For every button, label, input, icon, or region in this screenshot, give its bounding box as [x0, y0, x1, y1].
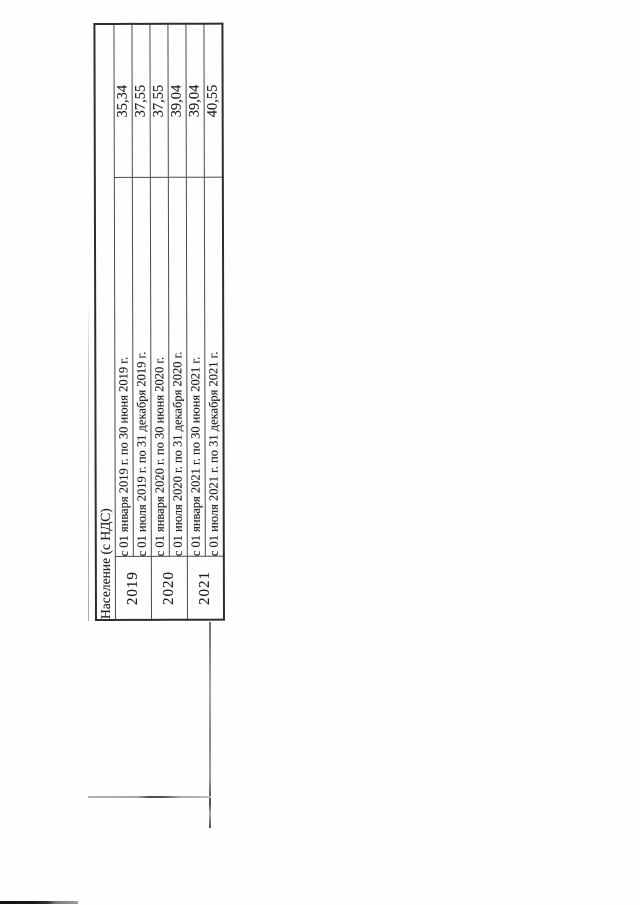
table-row: с 01 июля 2019 г. по 31 декабря 2019 г. … — [131, 24, 151, 620]
period-cell: с 01 июля 2020 г. по 31 декабря 2020 г. — [168, 178, 187, 557]
scanned-document-page: Население (с НДС) 2019 с 01 января 2019 … — [0, 0, 640, 905]
table-row: с 01 июля 2020 г. по 31 декабря 2020 г. … — [167, 24, 187, 620]
period-cell: с 01 июля 2021 г. по 31 декабря 2021 г. — [204, 178, 223, 557]
period-cell: с 01 июля 2019 г. по 31 декабря 2019 г. — [132, 178, 151, 557]
year-cell-2021: 2021 — [187, 557, 224, 620]
value-cell: 40,55 — [203, 24, 222, 178]
faint-table-left-border-line — [88, 796, 211, 798]
table-row: 2021 с 01 января 2021 г. по 30 июня 2021… — [185, 24, 205, 620]
value-cell: 39,04 — [167, 24, 185, 178]
table-header-cell: Население (с НДС) — [94, 24, 115, 620]
year-cell-2019: 2019 — [115, 557, 151, 620]
rotated-tariff-table-wrap: Население (с НДС) 2019 с 01 января 2019 … — [93, 25, 216, 621]
table-row: 2020 с 01 января 2020 г. по 30 июня 2020… — [149, 24, 169, 620]
scanner-edge-mark — [0, 901, 78, 904]
value-cell: 39,04 — [185, 24, 203, 178]
table-row: с 01 июля 2021 г. по 31 декабря 2021 г. … — [203, 24, 223, 620]
period-cell: с 01 января 2019 г. по 30 июня 2019 г. — [114, 178, 133, 557]
table-header-row: Население (с НДС) — [94, 24, 115, 620]
value-cell: 35,34 — [113, 24, 131, 178]
table-row: 2019 с 01 января 2019 г. по 30 июня 2019… — [113, 24, 133, 620]
value-cell: 37,55 — [131, 24, 149, 178]
tariff-table: Население (с НДС) 2019 с 01 января 2019 … — [93, 23, 224, 621]
period-cell: с 01 января 2021 г. по 30 июня 2021 г. — [186, 178, 205, 557]
scan-ghost-line — [88, 300, 89, 621]
period-cell: с 01 января 2020 г. по 30 июня 2020 г. — [150, 178, 169, 557]
value-cell: 37,55 — [149, 24, 167, 178]
year-cell-2020: 2020 — [151, 557, 187, 620]
